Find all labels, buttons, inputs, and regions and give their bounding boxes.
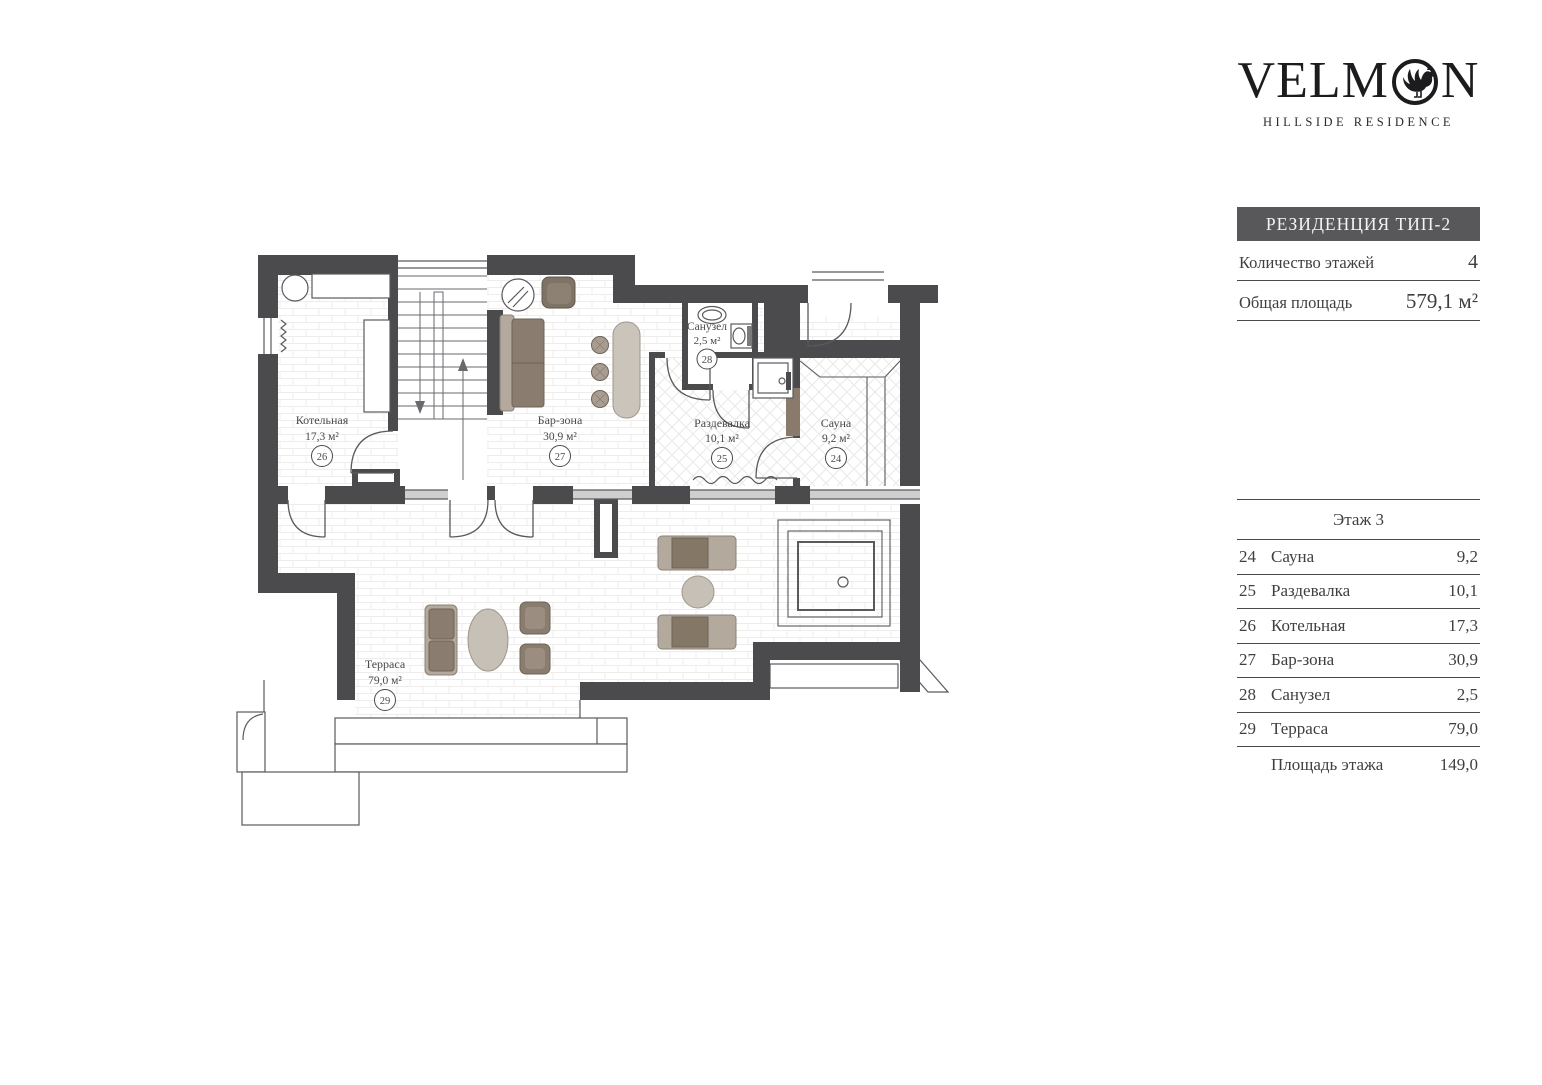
table-row: 26 Котельная 17,3 <box>1237 609 1480 644</box>
svg-text:10,1 м²: 10,1 м² <box>705 433 739 445</box>
residence-type-badge: РЕЗИДЕНЦИЯ ТИП-2 <box>1237 207 1480 241</box>
row-num: 26 <box>1239 616 1271 636</box>
page: { "brand": { "name_start": "VELM", "name… <box>0 0 1542 1080</box>
svg-text:30,9 м²: 30,9 м² <box>543 431 577 443</box>
row-area: 2,5 <box>1457 685 1478 705</box>
row-name: Терраса <box>1271 719 1448 739</box>
table-row: 24 Сауна 9,2 <box>1237 540 1480 575</box>
svg-text:Санузел: Санузел <box>687 321 727 333</box>
info-row-total-area: Общая площадь 579,1 м² <box>1237 281 1480 321</box>
svg-text:Терраса: Терраса <box>365 657 406 671</box>
bar-stools <box>592 337 609 408</box>
shower-cabin-icon <box>753 358 793 398</box>
footer-value: 149,0 <box>1440 755 1478 775</box>
svg-text:25: 25 <box>717 454 728 465</box>
row-num: 29 <box>1239 719 1271 739</box>
table-row: 27 Бар-зона 30,9 <box>1237 644 1480 679</box>
table-row: 25 Раздевалка 10,1 <box>1237 575 1480 610</box>
svg-text:28: 28 <box>702 355 713 366</box>
brand-name-start: VELM <box>1238 55 1389 107</box>
row-area: 30,9 <box>1448 650 1478 670</box>
row-area: 79,0 <box>1448 719 1478 739</box>
table-row: 29 Терраса 79,0 <box>1237 713 1480 748</box>
info-value: 4 <box>1468 251 1478 274</box>
sofa <box>500 315 544 411</box>
brand-logo: VELM N HILLSIDE RESIDENCE <box>1237 55 1480 130</box>
row-area: 9,2 <box>1457 547 1478 567</box>
row-name: Сауна <box>1271 547 1457 567</box>
info-panel: VELM N HILLSIDE RESIDENCE РЕЗИДЕНЦИЯ ТИП… <box>1237 55 1480 1035</box>
footer-label: Площадь этажа <box>1271 755 1440 775</box>
svg-text:24: 24 <box>831 454 842 465</box>
svg-text:Бар-зона: Бар-зона <box>538 413 583 427</box>
floor-area-table: Этаж 3 24 Сауна 9,2 25 Раздевалка 10,1 2… <box>1237 499 1480 783</box>
info-label: Общая площадь <box>1239 293 1352 313</box>
row-num: 28 <box>1239 685 1271 705</box>
svg-text:26: 26 <box>317 452 328 463</box>
mirror-icon <box>502 279 534 311</box>
brand-tagline: HILLSIDE RESIDENCE <box>1237 115 1480 130</box>
bar-counter <box>613 322 640 418</box>
table-row: 28 Санузел 2,5 <box>1237 678 1480 713</box>
residence-info: Количество этажей 4 Общая площадь 579,1 … <box>1237 243 1480 321</box>
row-area: 10,1 <box>1448 581 1478 601</box>
info-row-floors: Количество этажей 4 <box>1237 243 1480 281</box>
row-num: 27 <box>1239 650 1271 670</box>
oval-table <box>468 609 508 671</box>
boiler-counter <box>312 274 390 298</box>
svg-text:27: 27 <box>555 452 566 463</box>
row-num: 24 <box>1239 547 1271 567</box>
rooster-in-ring-icon <box>1391 58 1439 106</box>
brand-name-end: N <box>1441 55 1480 107</box>
row-name: Бар-зона <box>1271 650 1448 670</box>
svg-text:Сауна: Сауна <box>821 416 852 430</box>
entrance-porch-lines <box>812 272 884 280</box>
boiler-tank-icon <box>282 275 308 301</box>
svg-text:9,2 м²: 9,2 м² <box>822 433 851 445</box>
boiler-unit <box>364 320 390 412</box>
svg-text:29: 29 <box>380 696 391 707</box>
floor-plan: Котельная 17,3 м² 26 Бар-зона 30,9 м² 27… <box>0 0 1180 1080</box>
svg-text:2,5 м²: 2,5 м² <box>694 335 721 347</box>
row-name: Котельная <box>1271 616 1448 636</box>
terrace-sofa <box>425 605 457 675</box>
row-num: 25 <box>1239 581 1271 601</box>
table-footer: Площадь этажа 149,0 <box>1237 747 1480 783</box>
info-label: Количество этажей <box>1239 253 1374 273</box>
brand-name: VELM N <box>1237 55 1480 107</box>
table-header: Этаж 3 <box>1237 499 1480 540</box>
row-area: 17,3 <box>1448 616 1478 636</box>
svg-text:Котельная: Котельная <box>296 413 349 427</box>
row-name: Раздевалка <box>1271 581 1448 601</box>
round-table <box>682 576 714 608</box>
svg-text:79,0 м²: 79,0 м² <box>368 675 402 687</box>
toilet-icon <box>731 324 752 348</box>
info-value: 579,1 м² <box>1406 289 1478 314</box>
row-name: Санузел <box>1271 685 1457 705</box>
svg-text:17,3 м²: 17,3 м² <box>305 431 339 443</box>
floor-plan-svg: Котельная 17,3 м² 26 Бар-зона 30,9 м² 27… <box>0 0 1180 1080</box>
svg-text:Раздевалка: Раздевалка <box>694 416 751 430</box>
